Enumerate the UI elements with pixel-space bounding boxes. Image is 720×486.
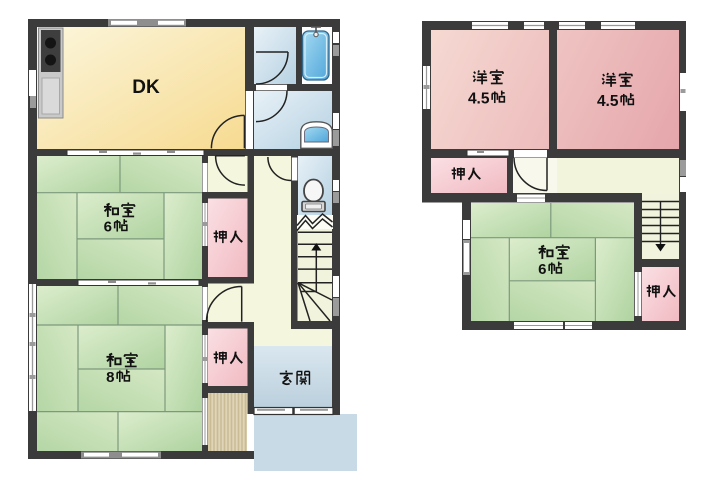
svg-text:4.5: 4.5 xyxy=(597,93,619,110)
svg-text:DK: DK xyxy=(132,77,160,98)
svg-text:8: 8 xyxy=(106,369,114,386)
svg-text:4.5: 4.5 xyxy=(468,91,490,108)
svg-text:6: 6 xyxy=(538,261,546,278)
svg-text:6: 6 xyxy=(104,219,112,236)
